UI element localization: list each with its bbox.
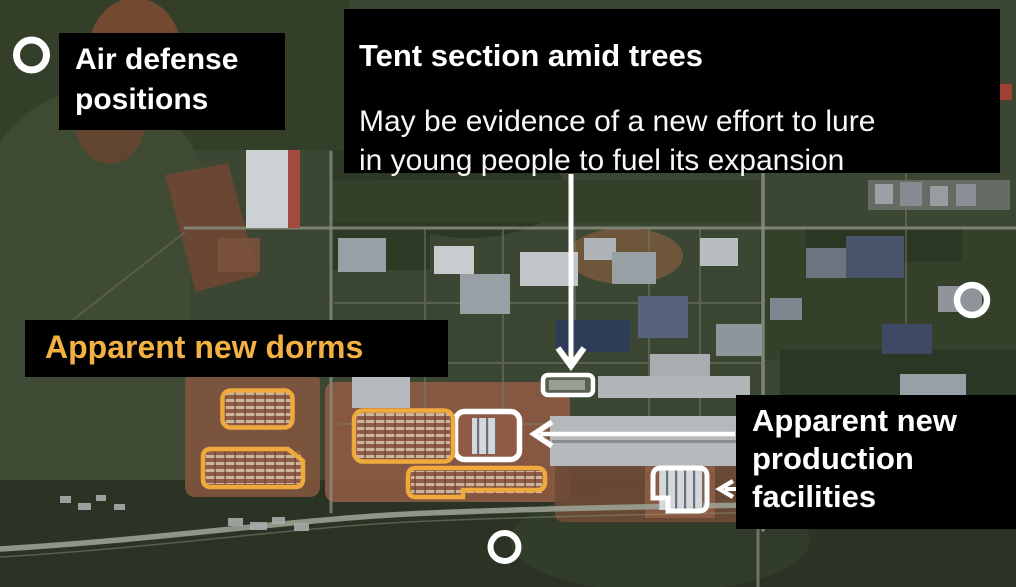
annotated-satellite-map: Air defense positions Tent section amid … <box>0 0 1016 587</box>
tent-callout-body: May be evidence of a new effort to lure … <box>359 102 1000 181</box>
air-defense-ring-bottom <box>491 533 519 561</box>
dorm-outlines <box>203 391 545 498</box>
tent-outline <box>543 375 593 395</box>
dorm-outline-4 <box>408 468 545 497</box>
air-defense-ring-top-left <box>17 40 47 70</box>
dorms-label: Apparent new dorms <box>25 320 448 377</box>
air-defense-ring-right <box>957 285 987 315</box>
tent-callout-title: Tent section amid trees <box>359 38 1000 74</box>
dorm-outline-1 <box>223 391 293 428</box>
callout-arrows <box>534 174 737 497</box>
dorm-outline-3 <box>354 411 453 462</box>
dorm-outline-2 <box>203 449 303 487</box>
production-outline-1 <box>456 412 520 460</box>
production-label: Apparent new production facilities <box>736 395 1016 529</box>
production-outline-2 <box>653 468 707 511</box>
air-defense-label: Air defense positions <box>59 33 285 130</box>
tent-callout: Tent section amid trees May be evidence … <box>344 9 1000 173</box>
